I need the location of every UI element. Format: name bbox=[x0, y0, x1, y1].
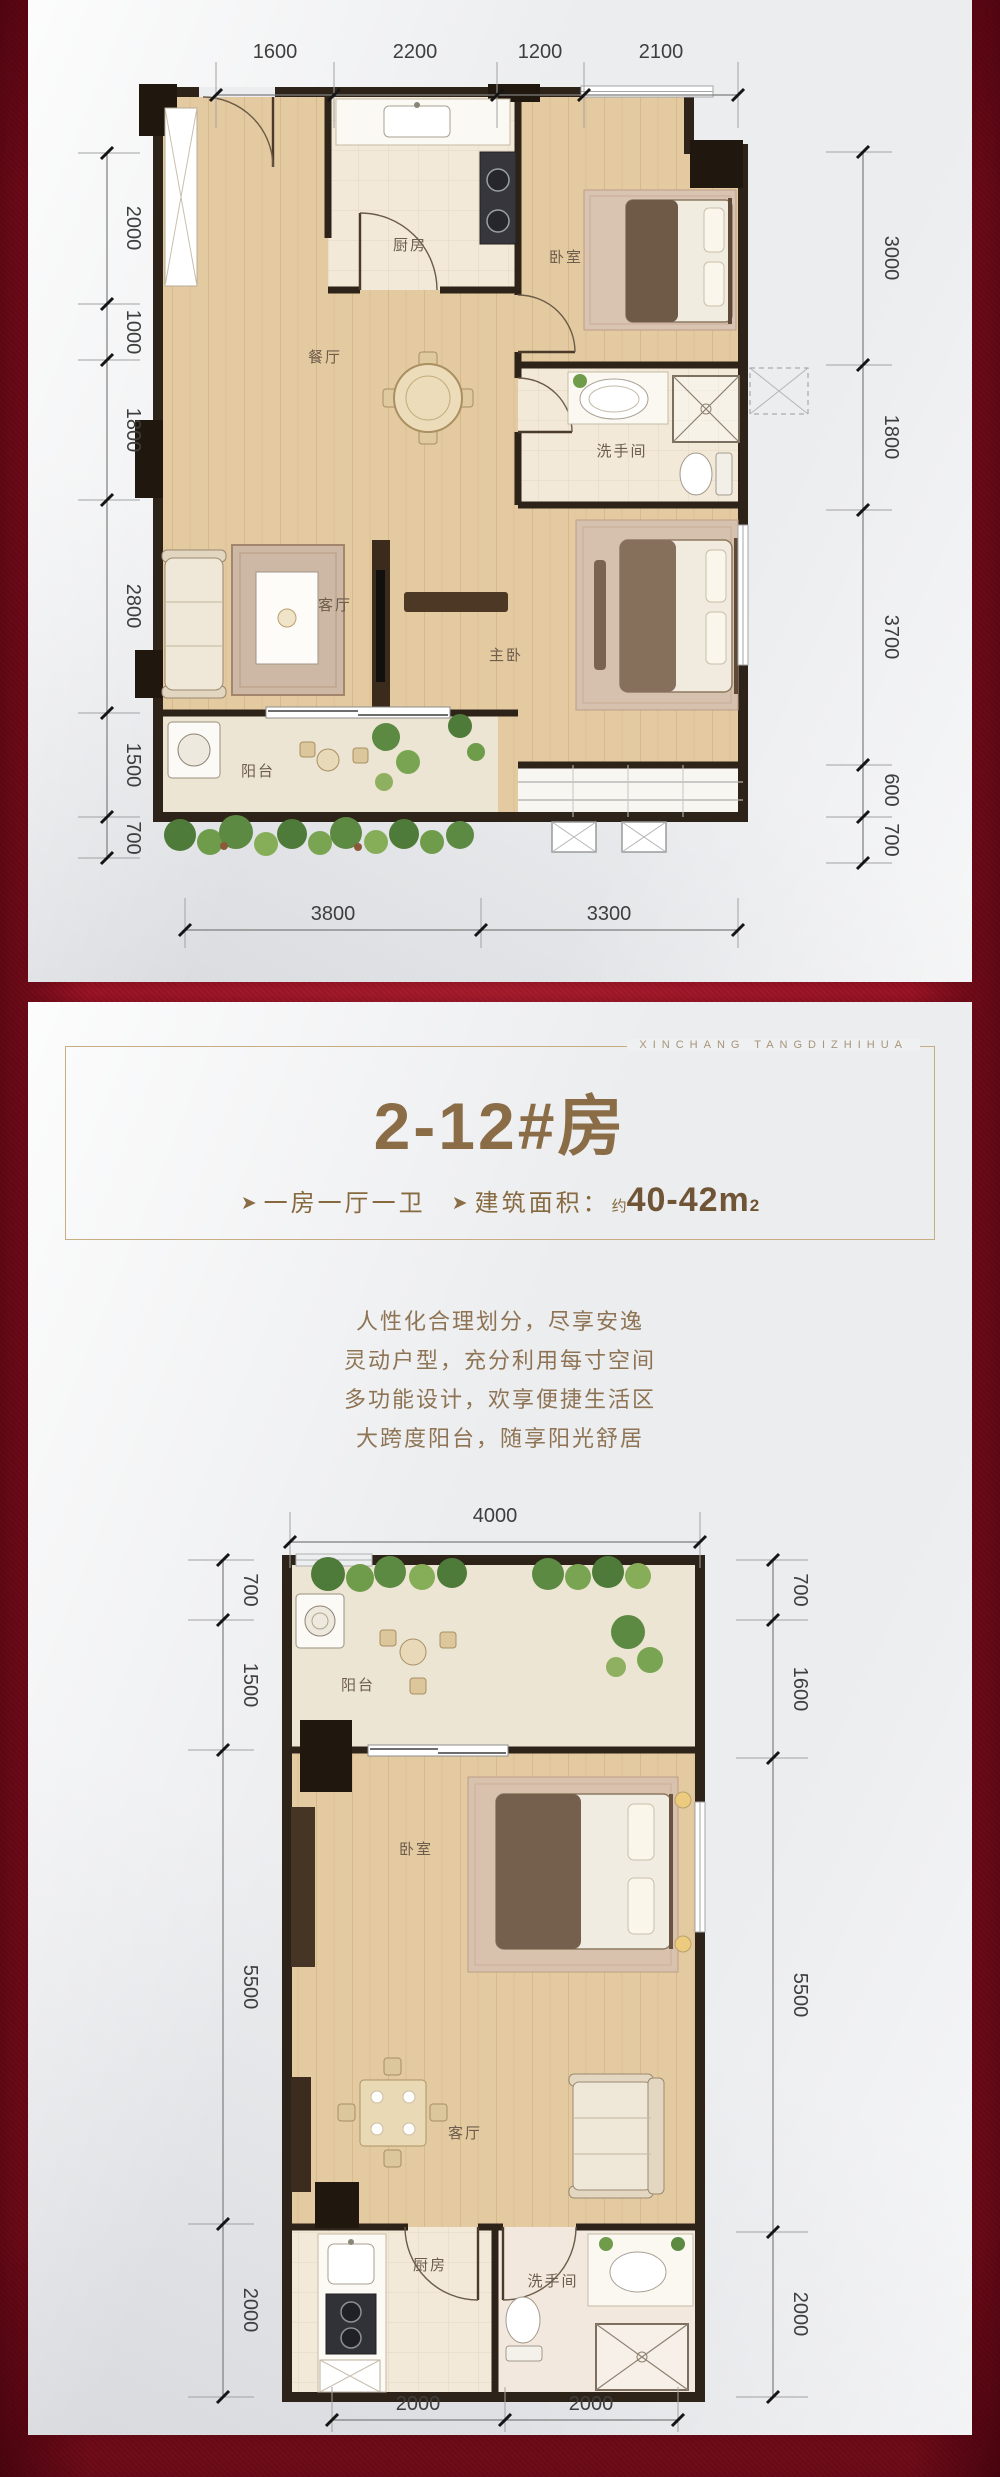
arrow-icon: ➤ bbox=[452, 1192, 468, 1215]
dim-label: 2000 bbox=[122, 206, 144, 251]
arrow-icon: ➤ bbox=[241, 1192, 257, 1215]
brand-watermark: XINCHANG TANGDIZHIHUA bbox=[627, 1039, 920, 1051]
area-label: 建筑面积： bbox=[475, 1183, 610, 1218]
chair-icon bbox=[384, 2150, 401, 2167]
dim-label: 2000 bbox=[239, 2288, 261, 2333]
pillow-icon bbox=[704, 208, 724, 252]
room-label-kitchen: 厨房 bbox=[413, 2257, 447, 2274]
unit-info-panel: XINCHANG TANGDIZHIHUA 2-12#房 ➤ 一房一厅一卫 ➤ … bbox=[28, 1002, 972, 2435]
area-value: 40-42m bbox=[627, 1181, 750, 1220]
plant-icon bbox=[671, 2237, 685, 2251]
chair-icon bbox=[353, 748, 368, 763]
floor-plan-a-svg: 1600 2200 1200 2100 2000 1000 1800 2800 … bbox=[28, 0, 972, 982]
bedroom-furniture bbox=[584, 190, 736, 330]
dim-label: 1000 bbox=[122, 310, 144, 355]
plant-icon bbox=[573, 374, 587, 388]
entry-wardrobe-icon bbox=[165, 108, 197, 286]
description-line: 灵动户型，充分利用每寸空间 bbox=[28, 1341, 972, 1380]
plant-icon bbox=[448, 714, 472, 738]
table-icon bbox=[317, 749, 339, 771]
sink-icon bbox=[328, 2244, 374, 2284]
toilet-icon bbox=[680, 453, 712, 495]
chair-icon bbox=[338, 2104, 355, 2121]
dim-label: 700 bbox=[239, 1573, 261, 1606]
unit-title: 2-12#房 bbox=[66, 1073, 934, 1169]
pillow-icon bbox=[628, 1804, 654, 1860]
dim-label: 2200 bbox=[393, 41, 438, 63]
dim-label: 2000 bbox=[569, 2393, 614, 2415]
sink-icon bbox=[384, 106, 450, 137]
sofa-icon bbox=[573, 2082, 651, 2190]
plant-icon bbox=[637, 1647, 663, 1673]
chair-icon bbox=[410, 1678, 426, 1694]
room-label-balcony: 阳台 bbox=[241, 763, 275, 780]
dining-table-icon bbox=[360, 2080, 426, 2146]
floor-plan-b-svg: 4000 700 1500 5500 2000 700 1600 5500 20… bbox=[28, 1482, 972, 2435]
dim-label: 5500 bbox=[239, 1965, 261, 2010]
description: 人性化合理划分，尽享安逸 灵动户型，充分利用每寸空间 多功能设计，欢享便捷生活区… bbox=[28, 1302, 972, 1458]
dim-label: 1500 bbox=[122, 743, 144, 788]
bay-window-floor bbox=[518, 765, 743, 817]
dim-label: 3000 bbox=[880, 236, 902, 281]
dim-label: 2800 bbox=[122, 584, 144, 629]
dim-label: 700 bbox=[880, 823, 902, 856]
dim-label: 3300 bbox=[587, 903, 632, 925]
dim-label: 1600 bbox=[789, 1667, 811, 1712]
dim-label: 2100 bbox=[639, 41, 684, 63]
balcony-sliding-door-icon bbox=[266, 707, 450, 718]
chair-icon bbox=[440, 1632, 456, 1648]
dim-label: 2000 bbox=[396, 2393, 441, 2415]
tv-icon bbox=[376, 570, 385, 682]
dining-table-icon bbox=[394, 364, 462, 432]
room-label-living: 客厅 bbox=[318, 597, 352, 614]
wardrobe-icon bbox=[291, 1807, 315, 1967]
pillow-icon bbox=[706, 612, 726, 664]
unit-subtitle: ➤ 一房一厅一卫 ➤ 建筑面积： 约 40-42m2 bbox=[66, 1181, 934, 1220]
plant-icon bbox=[611, 1615, 645, 1649]
floor-plan-a-panel: 1600 2200 1200 2100 2000 1000 1800 2800 … bbox=[28, 0, 972, 982]
bathtub-icon bbox=[580, 379, 648, 419]
room-label-dining: 餐厅 bbox=[308, 349, 342, 366]
area-approx: 约 bbox=[612, 1195, 627, 1216]
lamp-icon bbox=[675, 1936, 691, 1952]
plant-icon bbox=[372, 723, 400, 751]
dim-label: 5500 bbox=[789, 1973, 811, 2018]
bed-bench-icon bbox=[594, 560, 606, 670]
room-label-bedroom: 卧室 bbox=[399, 1841, 433, 1858]
dim-label: 1200 bbox=[518, 41, 563, 63]
room-label-bathroom: 洗手间 bbox=[596, 443, 647, 460]
plant-icon bbox=[606, 1657, 626, 1677]
pillow-icon bbox=[628, 1878, 654, 1934]
plant-icon bbox=[599, 2237, 613, 2251]
description-line: 人性化合理划分，尽享安逸 bbox=[28, 1302, 972, 1341]
description-line: 多功能设计，欢享便捷生活区 bbox=[28, 1380, 972, 1419]
sofa-icon bbox=[165, 558, 223, 690]
area-sup: 2 bbox=[750, 1196, 759, 1216]
dim-label: 2000 bbox=[789, 2292, 811, 2337]
dim-label: 1800 bbox=[122, 408, 144, 453]
room-label-kitchen: 厨房 bbox=[393, 237, 427, 254]
dim-label: 1600 bbox=[253, 41, 298, 63]
room-label-balcony: 阳台 bbox=[341, 1677, 375, 1694]
plan-b-windows bbox=[695, 1802, 705, 1932]
chair-icon bbox=[300, 742, 315, 757]
lamp-icon bbox=[675, 1792, 691, 1808]
plant-icon bbox=[396, 750, 420, 774]
dim-label: 4000 bbox=[473, 1505, 518, 1527]
basin-icon bbox=[610, 2252, 666, 2292]
pillow-icon bbox=[706, 550, 726, 602]
dresser-icon bbox=[404, 592, 508, 612]
dim-label: 1500 bbox=[239, 1663, 261, 1708]
dim-label: 700 bbox=[789, 1573, 811, 1606]
tv-stand-icon bbox=[291, 2077, 311, 2192]
dim-label: 3700 bbox=[880, 615, 902, 660]
toilet-icon bbox=[506, 2297, 540, 2343]
description-line: 大跨度阳台，随享阳光舒居 bbox=[28, 1419, 972, 1458]
floor-plan-poster: 1600 2200 1200 2100 2000 1000 1800 2800 … bbox=[0, 0, 1000, 2477]
room-label-living: 客厅 bbox=[448, 2125, 482, 2142]
chair-icon bbox=[384, 2058, 401, 2075]
table-icon bbox=[400, 1639, 426, 1665]
dim-label: 3800 bbox=[311, 903, 356, 925]
plant-icon bbox=[467, 743, 485, 761]
plant-icon bbox=[375, 773, 393, 791]
dim-label: 600 bbox=[880, 773, 902, 806]
room-label-bedroom: 卧室 bbox=[549, 249, 583, 266]
layout-text: 一房一厅一卫 bbox=[264, 1183, 426, 1218]
balcony-sliding-door-icon bbox=[368, 1745, 508, 1756]
chair-icon bbox=[430, 2104, 447, 2121]
dim-label: 1800 bbox=[880, 415, 902, 460]
unit-title-box: XINCHANG TANGDIZHIHUA 2-12#房 ➤ 一房一厅一卫 ➤ … bbox=[65, 1046, 935, 1240]
dim-label: 700 bbox=[122, 821, 144, 854]
room-label-master-bedroom: 主卧 bbox=[489, 647, 523, 664]
room-label-bathroom: 洗手间 bbox=[527, 2273, 578, 2290]
pillow-icon bbox=[704, 262, 724, 306]
chair-icon bbox=[380, 1630, 396, 1646]
